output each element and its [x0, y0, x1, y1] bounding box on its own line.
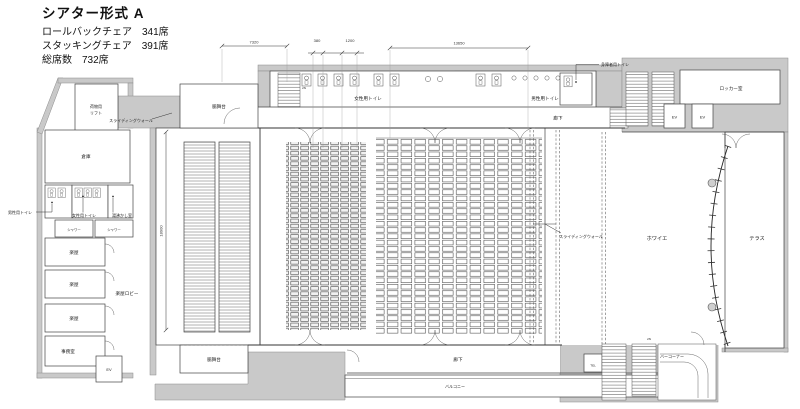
shower-label: シャワー	[107, 227, 121, 232]
seating-stacking-section	[376, 138, 542, 334]
spec-value: 732席	[82, 54, 109, 68]
toilet-stall	[492, 74, 501, 86]
corridor-label: 廊下	[553, 115, 563, 122]
office-label: 事務室	[61, 348, 75, 355]
mens-toilet-label: 男性用トイレ	[8, 209, 32, 215]
backstage-rooms: 荷物用 リフト 倉庫 シャワー シャワー 楽屋 楽屋 楽屋 楽屋ロビー 事務室 …	[45, 84, 139, 382]
toilet-stall	[48, 188, 55, 198]
toilet-stall	[334, 74, 343, 86]
stairs-right-1	[626, 72, 648, 126]
svg-text:7320: 7320	[250, 40, 260, 45]
svg-text:18900: 18900	[159, 225, 164, 237]
spec-rollback: ロールバックチェア 341席	[42, 26, 169, 40]
svg-text:1200: 1200	[346, 38, 356, 43]
column	[708, 179, 716, 187]
leader-dot	[575, 81, 577, 83]
womens-toilet-label: 女性用トイレ	[72, 212, 96, 218]
storage-label: 倉庫	[81, 153, 91, 160]
side-stage-label: 脇舞台	[207, 356, 221, 363]
page-title: シアター形式 A	[42, 2, 169, 22]
stair-note: 2N	[647, 337, 651, 341]
spec-label: 総席数	[42, 54, 72, 68]
toilet-stall	[75, 188, 82, 198]
spec-value: 341席	[142, 26, 169, 40]
elevator-label: EV	[672, 115, 678, 120]
elevator-label: EV	[700, 115, 706, 120]
cargo-lift-label: リフト	[90, 111, 102, 116]
bar-area	[658, 344, 716, 400]
corridor-label: 廊下	[453, 356, 463, 363]
terrace-label: テラス	[749, 235, 764, 242]
stairs-bottom-2	[632, 344, 656, 396]
shower-label: シャワー	[67, 227, 81, 232]
tel-label: TEL	[590, 364, 596, 368]
seating-rollback-section	[286, 142, 366, 330]
column	[708, 303, 716, 311]
womens-toilet-label: 女性用トイレ	[354, 95, 382, 102]
stair-note: 2N	[302, 86, 306, 90]
stairs-bottom-1	[602, 344, 626, 400]
balcony-label: バルコニー	[445, 384, 465, 389]
stairs-top	[278, 73, 300, 107]
sliding-wall-label: スライディングウォール	[559, 233, 603, 239]
side-stage-label: 脇舞台	[212, 103, 226, 110]
leader-dot	[112, 196, 114, 198]
toilet-stall	[93, 188, 100, 198]
locker-room-label: ロッカー室	[720, 85, 743, 92]
toilet-stall	[564, 76, 572, 87]
toilet-stall	[476, 74, 485, 86]
foyer-label: ホワイエ	[647, 235, 668, 242]
leader-dot	[51, 202, 53, 204]
door-arcs-dressing	[105, 244, 114, 350]
cargo-lift-label: 荷物用	[90, 103, 102, 109]
dressing-lobby-label: 楽屋ロビー	[116, 290, 139, 297]
dressing-room-label: 楽屋	[69, 315, 79, 322]
elevator-label: EV	[106, 367, 112, 372]
toilet-stall	[84, 188, 91, 198]
rollback-chair-storage	[184, 142, 215, 332]
leader-dot	[82, 196, 84, 198]
spec-label: スタッキングチェア	[42, 40, 132, 54]
svg-text:380: 380	[314, 38, 321, 43]
dressing-room-label: 楽屋	[69, 249, 79, 256]
sliding-wall-label: スライディングウォール	[109, 117, 153, 123]
bar-corner-label: バーコーナー	[660, 353, 684, 359]
toilet-stall	[350, 74, 359, 86]
spec-value: 391席	[142, 40, 169, 54]
svg-text:13650: 13650	[453, 41, 465, 46]
toilet-stall	[390, 74, 399, 86]
spec-stacking: スタッキングチェア 391席	[42, 40, 169, 54]
hot-water-label: 湯沸かし室	[112, 212, 132, 218]
toilet-stall	[302, 74, 311, 86]
toilet-stall	[318, 74, 327, 86]
mens-toilet-label: 男性用トイレ	[531, 95, 559, 102]
plan-header: シアター形式 A ロールバックチェア 341席 スタッキングチェア 391席 総…	[42, 2, 169, 68]
spec-label: ロールバックチェア	[42, 26, 132, 40]
toilet-stall	[374, 74, 383, 86]
stairs-right-small	[610, 108, 628, 128]
seating	[286, 138, 542, 334]
toilet-stall	[58, 188, 65, 198]
corridor-top-floor	[258, 107, 622, 128]
floorplan-page: { "header": { "title": "シアター形式 A", "spec…	[0, 0, 800, 409]
accessible-toilet-label: 身障者用トイレ	[601, 61, 629, 67]
dressing-room-label: 楽屋	[69, 281, 79, 288]
spec-total: 総席数 732席	[42, 54, 169, 68]
rollback-chair-storage	[219, 142, 250, 332]
